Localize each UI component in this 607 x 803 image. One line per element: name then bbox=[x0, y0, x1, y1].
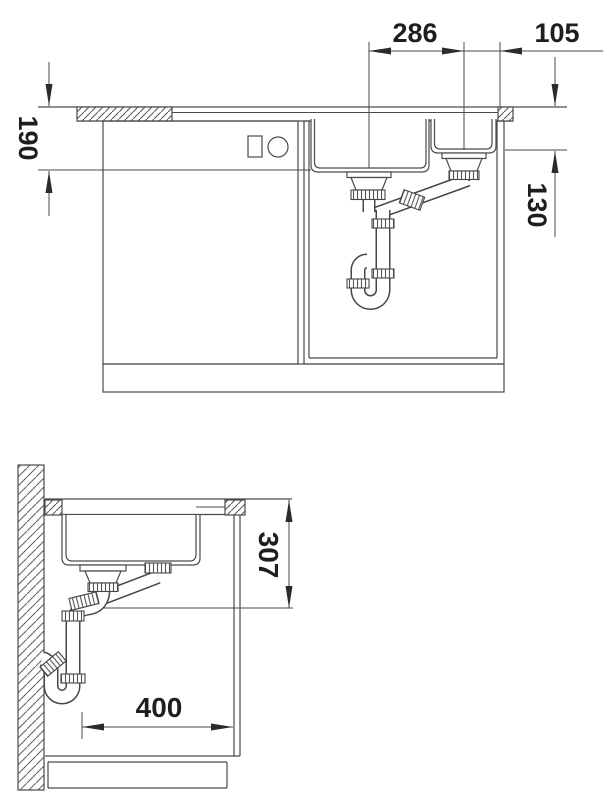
countertop-cut-hatch-right bbox=[225, 500, 245, 515]
countertop-cut-hatch-right bbox=[498, 107, 513, 121]
dim-main-bowl-depth: 190 bbox=[13, 62, 53, 216]
drain-plumbing-side bbox=[40, 563, 171, 697]
small-bowl-drain bbox=[442, 153, 486, 180]
strainer-flange bbox=[442, 153, 486, 159]
countertop-front bbox=[38, 107, 567, 121]
strainer-cup bbox=[85, 571, 121, 583]
dim-arrowhead bbox=[46, 84, 53, 106]
front-elevation-view: 286 105 190 130 bbox=[13, 18, 603, 392]
dim-label-bowl-spacing: 286 bbox=[392, 18, 437, 48]
trap-leg-nut bbox=[61, 674, 85, 683]
strainer-flange bbox=[347, 172, 391, 178]
dim-label-right-edge-offset: 105 bbox=[534, 18, 579, 48]
downpipe-nut-upper bbox=[372, 219, 394, 228]
wall-section bbox=[18, 465, 44, 790]
dim-right-edge-offset: 105 bbox=[500, 18, 580, 55]
dim-clearance-width: 400 bbox=[82, 692, 233, 739]
sink-installation-drawing: 286 105 190 130 bbox=[0, 0, 607, 803]
downpipe-nut bbox=[62, 611, 84, 621]
dim-arrowhead bbox=[442, 48, 464, 55]
dim-arrowhead bbox=[46, 171, 53, 193]
dim-arrowhead bbox=[82, 724, 104, 731]
appliance-cabinet-body bbox=[103, 121, 298, 364]
dim-fitting-depth: 307 bbox=[253, 500, 293, 608]
dim-label-fitting-depth: 307 bbox=[253, 532, 284, 579]
strainer-flange bbox=[80, 565, 126, 571]
dim-label-small-bowl-depth: 130 bbox=[522, 182, 552, 227]
dim-arrowhead bbox=[369, 48, 391, 55]
strainer-nut bbox=[351, 190, 385, 200]
dim-arrowhead bbox=[211, 724, 233, 731]
countertop-side bbox=[45, 499, 292, 515]
dim-arrowhead bbox=[552, 84, 559, 106]
dim-arrowhead bbox=[500, 48, 522, 55]
dim-label-clearance-width: 400 bbox=[136, 692, 183, 723]
bowl-outer bbox=[62, 515, 200, 565]
dim-arrowhead bbox=[286, 500, 293, 522]
side-section-view: 307 400 bbox=[18, 465, 293, 790]
downpipe-nut-lower bbox=[372, 269, 394, 278]
diagram-page: 286 105 190 130 bbox=[0, 0, 607, 803]
main-bowl-outer bbox=[311, 119, 429, 172]
countertop-cut-hatch-left bbox=[45, 500, 62, 515]
trap-outlet-nut bbox=[347, 279, 369, 288]
control-knob-icon bbox=[268, 137, 288, 157]
countertop-cut-hatch-left bbox=[77, 107, 172, 121]
strainer-cup bbox=[351, 178, 387, 191]
dim-label-main-bowl-depth: 190 bbox=[13, 115, 43, 160]
appliance-cabinet bbox=[103, 121, 298, 364]
bowl-section bbox=[62, 515, 200, 565]
strainer-nut bbox=[88, 583, 118, 592]
dim-arrowhead bbox=[552, 151, 559, 173]
dim-small-bowl-depth: 130 bbox=[522, 57, 559, 237]
plinth-front bbox=[103, 364, 504, 392]
strainer-cup bbox=[446, 159, 482, 172]
drain-plumbing-front bbox=[347, 153, 486, 303]
main-bowl-drain bbox=[347, 172, 391, 200]
rear-drain-nut bbox=[145, 563, 171, 573]
dim-arrowhead bbox=[286, 586, 293, 608]
control-panel-display bbox=[248, 136, 262, 157]
strainer-nut bbox=[449, 171, 479, 180]
